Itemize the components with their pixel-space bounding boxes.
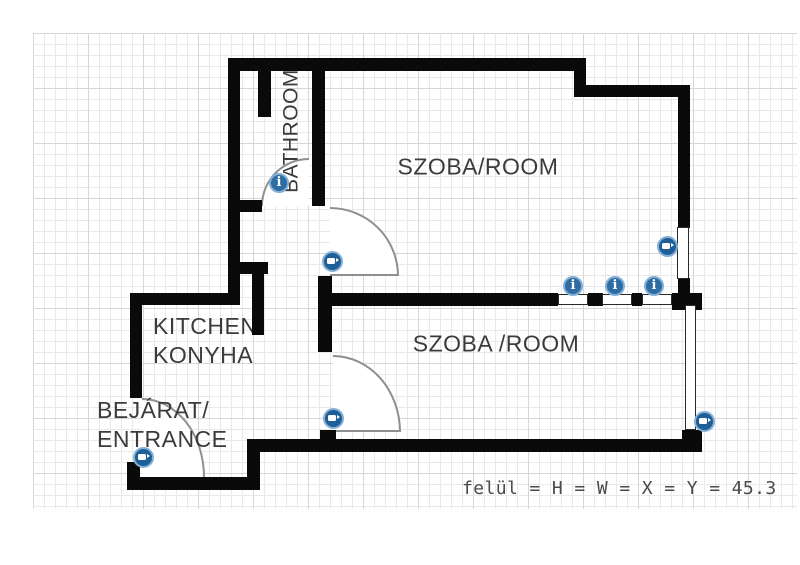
camera-body-glyph xyxy=(699,418,707,424)
camera-icon[interactable] xyxy=(694,411,715,432)
camera-icon[interactable] xyxy=(322,251,343,272)
camera-body-glyph xyxy=(662,243,670,249)
camera-lens-glyph xyxy=(708,418,711,422)
info-icon[interactable]: i xyxy=(605,276,625,296)
info-icon[interactable]: i xyxy=(269,173,289,193)
camera-body-glyph xyxy=(328,415,336,421)
camera-lens-glyph xyxy=(336,258,339,262)
floorplan-canvas: BATHROOMSZOBA/ROOMSZOBA /ROOMKITCHEN/KON… xyxy=(0,0,800,565)
camera-icon[interactable] xyxy=(323,408,344,429)
info-icon[interactable]: i xyxy=(644,276,664,296)
camera-lens-glyph xyxy=(147,454,150,458)
status-text: felül = H = W = X = Y = 45.3 xyxy=(462,478,777,499)
camera-icon[interactable] xyxy=(657,236,678,257)
camera-body-glyph xyxy=(327,258,335,264)
camera-body-glyph xyxy=(138,454,146,460)
camera-lens-glyph xyxy=(671,243,674,247)
camera-icon[interactable] xyxy=(133,447,154,468)
camera-lens-glyph xyxy=(337,415,340,419)
info-icon[interactable]: i xyxy=(563,276,583,296)
